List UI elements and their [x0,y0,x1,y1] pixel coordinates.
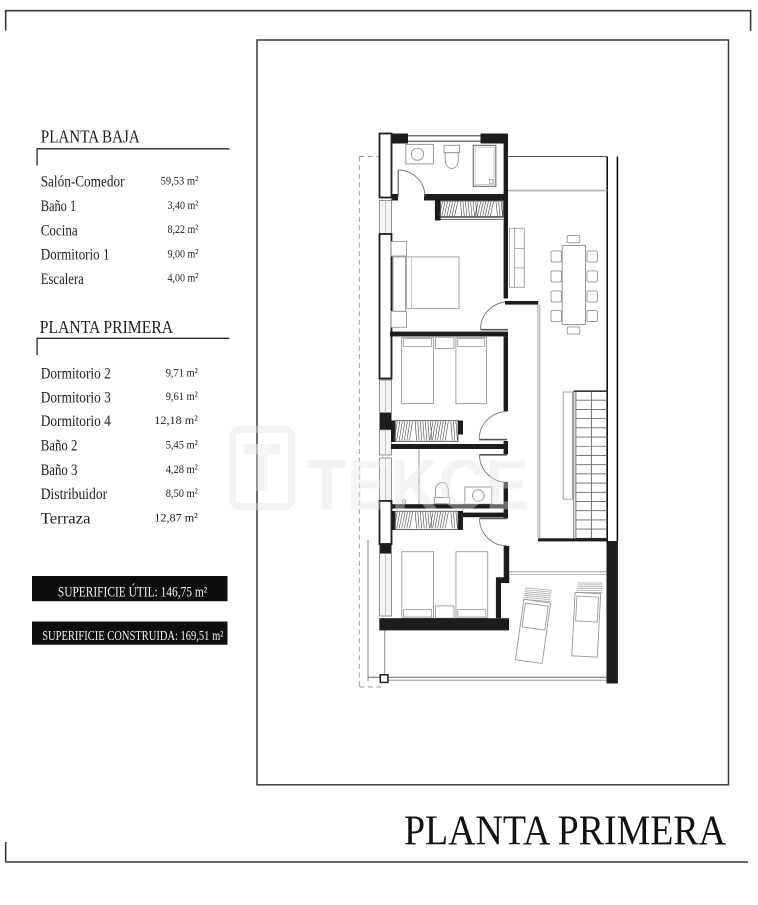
svg-text:TEKCE: TEKCE [307,447,529,526]
svg-text:PLANTA PRIMERA: PLANTA PRIMERA [40,317,174,337]
svg-text:Dormitorio 1: Dormitorio 1 [41,247,110,264]
svg-text:3,40 m²: 3,40 m² [168,198,199,212]
svg-text:9,61 m²: 9,61 m² [166,389,198,403]
svg-text:Dormitorio 2: Dormitorio 2 [41,366,111,383]
svg-text:Escalera: Escalera [41,271,84,288]
svg-text:Dormitorio 3: Dormitorio 3 [41,389,111,406]
svg-text:PLANTA PRIMERA: PLANTA PRIMERA [404,807,726,854]
svg-text:5,45 m²: 5,45 m² [166,437,198,451]
svg-text:SUPERIFICIE ÚTIL: 146,75 m²: SUPERIFICIE ÚTIL: 146,75 m² [58,584,207,601]
svg-text:Dormitorio 4: Dormitorio 4 [41,413,111,430]
svg-text:9,00 m²: 9,00 m² [168,246,199,260]
svg-text:Terraza: Terraza [41,511,91,528]
svg-text:4,28 m²: 4,28 m² [166,462,198,476]
svg-text:9,71 m²: 9,71 m² [166,365,198,379]
svg-text:12,18 m²: 12,18 m² [154,413,198,427]
svg-text:Salón-Comedor: Salón-Comedor [41,174,125,191]
svg-text:Baño 1: Baño 1 [41,198,76,215]
svg-text:Cocina: Cocina [41,222,78,239]
svg-text:Baño 3: Baño 3 [41,462,78,479]
svg-text:8,22 m²: 8,22 m² [168,222,199,236]
svg-text:4,00 m²: 4,00 m² [168,271,199,285]
svg-text:Baño 2: Baño 2 [41,438,78,455]
svg-text:PLANTA BAJA: PLANTA BAJA [41,127,140,147]
svg-text:SUPERIFICIE CONSTRUIDA: 169,51: SUPERIFICIE CONSTRUIDA: 169,51 m² [42,628,223,643]
svg-text:8,50 m²: 8,50 m² [166,486,198,500]
svg-text:Distribuidor: Distribuidor [41,486,108,503]
svg-text:59,53 m²: 59,53 m² [161,174,199,188]
svg-text:12,87 m²: 12,87 m² [154,510,198,524]
